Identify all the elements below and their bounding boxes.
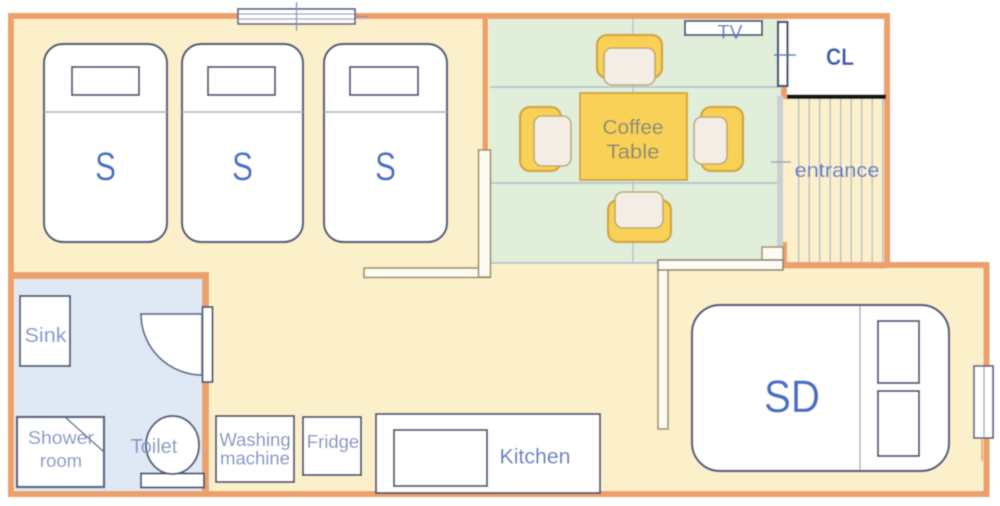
svg-text:Toilet: Toilet <box>131 436 178 458</box>
svg-text:room: room <box>40 450 82 471</box>
svg-text:Coffee: Coffee <box>603 117 664 139</box>
svg-text:TV: TV <box>718 22 743 44</box>
svg-text:S: S <box>95 145 116 189</box>
svg-text:Table: Table <box>607 142 660 164</box>
svg-text:S: S <box>375 145 396 189</box>
svg-text:Kitchen: Kitchen <box>500 446 571 469</box>
svg-text:machine: machine <box>220 448 290 469</box>
svg-text:SD: SD <box>764 371 820 422</box>
svg-text:S: S <box>232 145 253 189</box>
svg-text:Sink: Sink <box>25 325 68 347</box>
svg-text:Shower: Shower <box>28 427 94 448</box>
svg-text:entrance: entrance <box>795 160 880 182</box>
svg-text:CL: CL <box>826 44 854 71</box>
svg-text:Fridge: Fridge <box>307 431 359 452</box>
